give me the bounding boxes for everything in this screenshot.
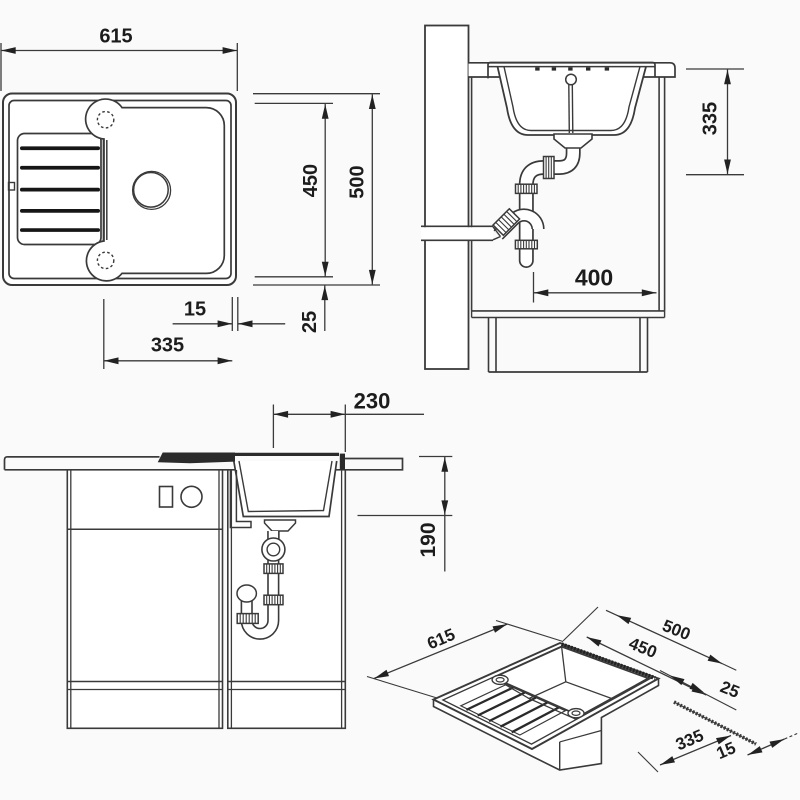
svg-text:615: 615 bbox=[99, 25, 132, 47]
svg-text:25: 25 bbox=[299, 311, 321, 333]
svg-text:335: 335 bbox=[151, 334, 184, 356]
svg-text:450: 450 bbox=[300, 164, 322, 197]
svg-text:335: 335 bbox=[699, 102, 721, 135]
svg-text:400: 400 bbox=[575, 265, 613, 291]
svg-text:190: 190 bbox=[417, 522, 440, 557]
svg-text:500: 500 bbox=[346, 165, 368, 198]
svg-text:15: 15 bbox=[184, 298, 206, 320]
svg-text:230: 230 bbox=[354, 388, 391, 413]
